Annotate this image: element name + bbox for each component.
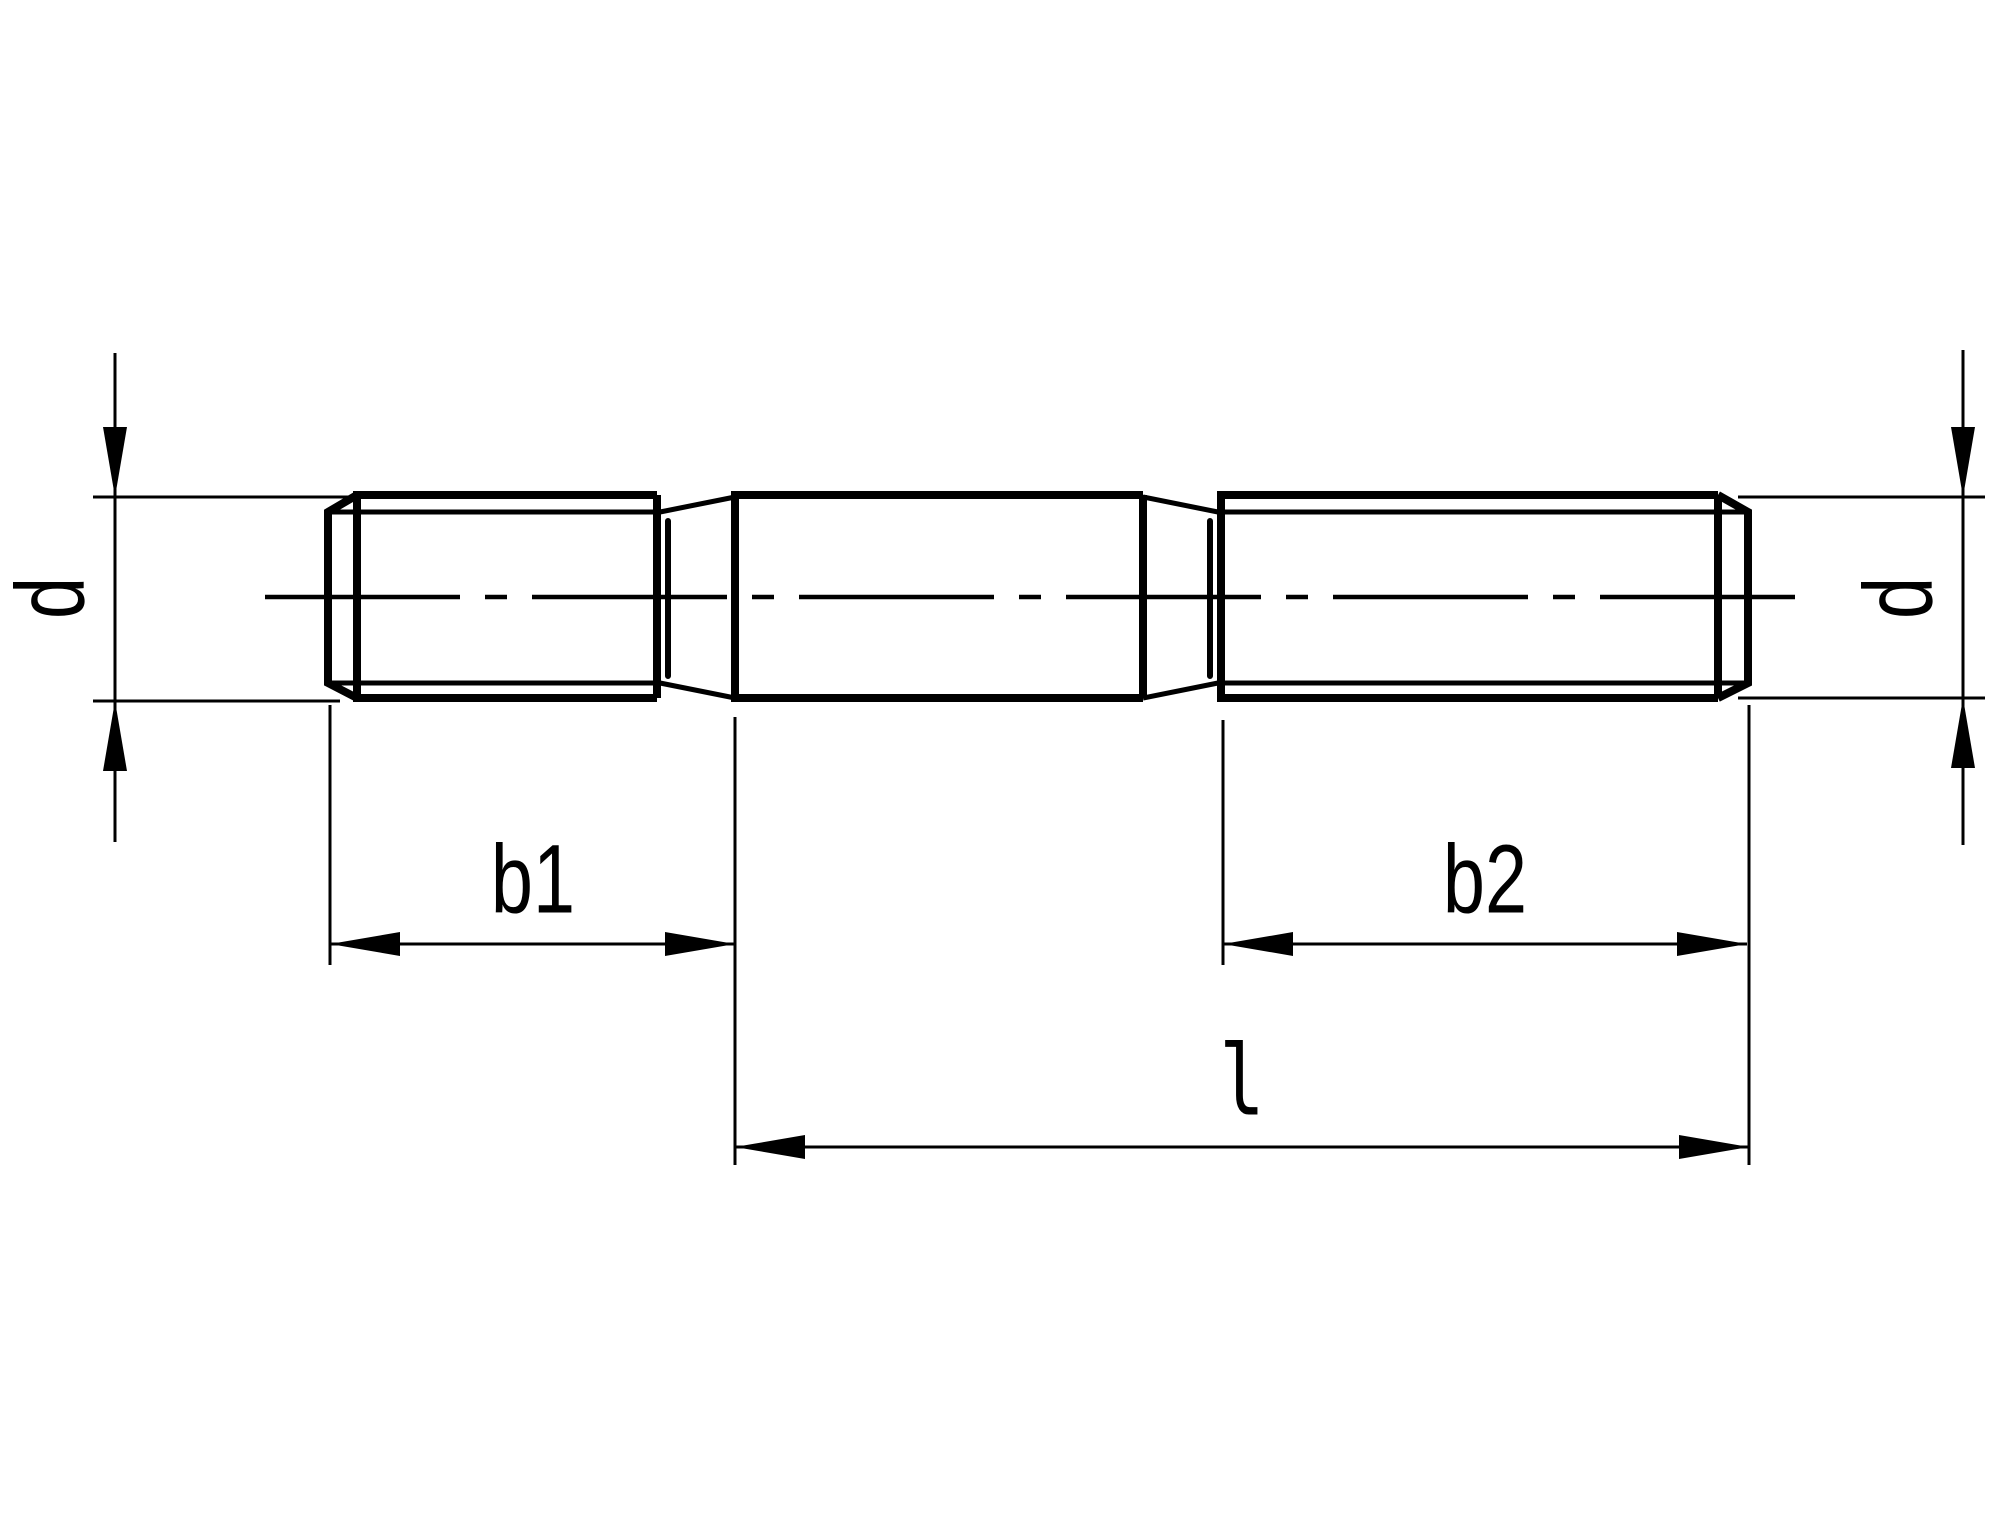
d-right-arrow-down	[1951, 427, 1975, 497]
stud-bolt-drawing	[0, 0, 2000, 1523]
b1-arrow-right	[665, 932, 735, 956]
b2-arrow-left	[1223, 932, 1293, 956]
l-arrow-left	[735, 1135, 805, 1159]
l-arrow-right	[1679, 1135, 1749, 1159]
diameter-label-left: d	[2, 577, 99, 619]
b1-arrow-left	[330, 932, 400, 956]
d-left-arrow-up	[103, 701, 127, 771]
dimension-lines	[115, 350, 1963, 1147]
d-left-arrow-down	[103, 427, 127, 497]
overall-length-label-l: l	[1219, 1033, 1265, 1130]
diameter-label-right: d	[1850, 577, 1947, 619]
d-right-arrow-up	[1951, 698, 1975, 768]
thread-length-label-b1: b1	[491, 831, 575, 928]
thread-length-label-b2: b2	[1443, 831, 1527, 928]
b2-arrow-right	[1677, 932, 1747, 956]
technical-drawing-canvas: d d b1 b2 l	[0, 0, 2000, 1523]
arrowheads	[103, 427, 1975, 1159]
